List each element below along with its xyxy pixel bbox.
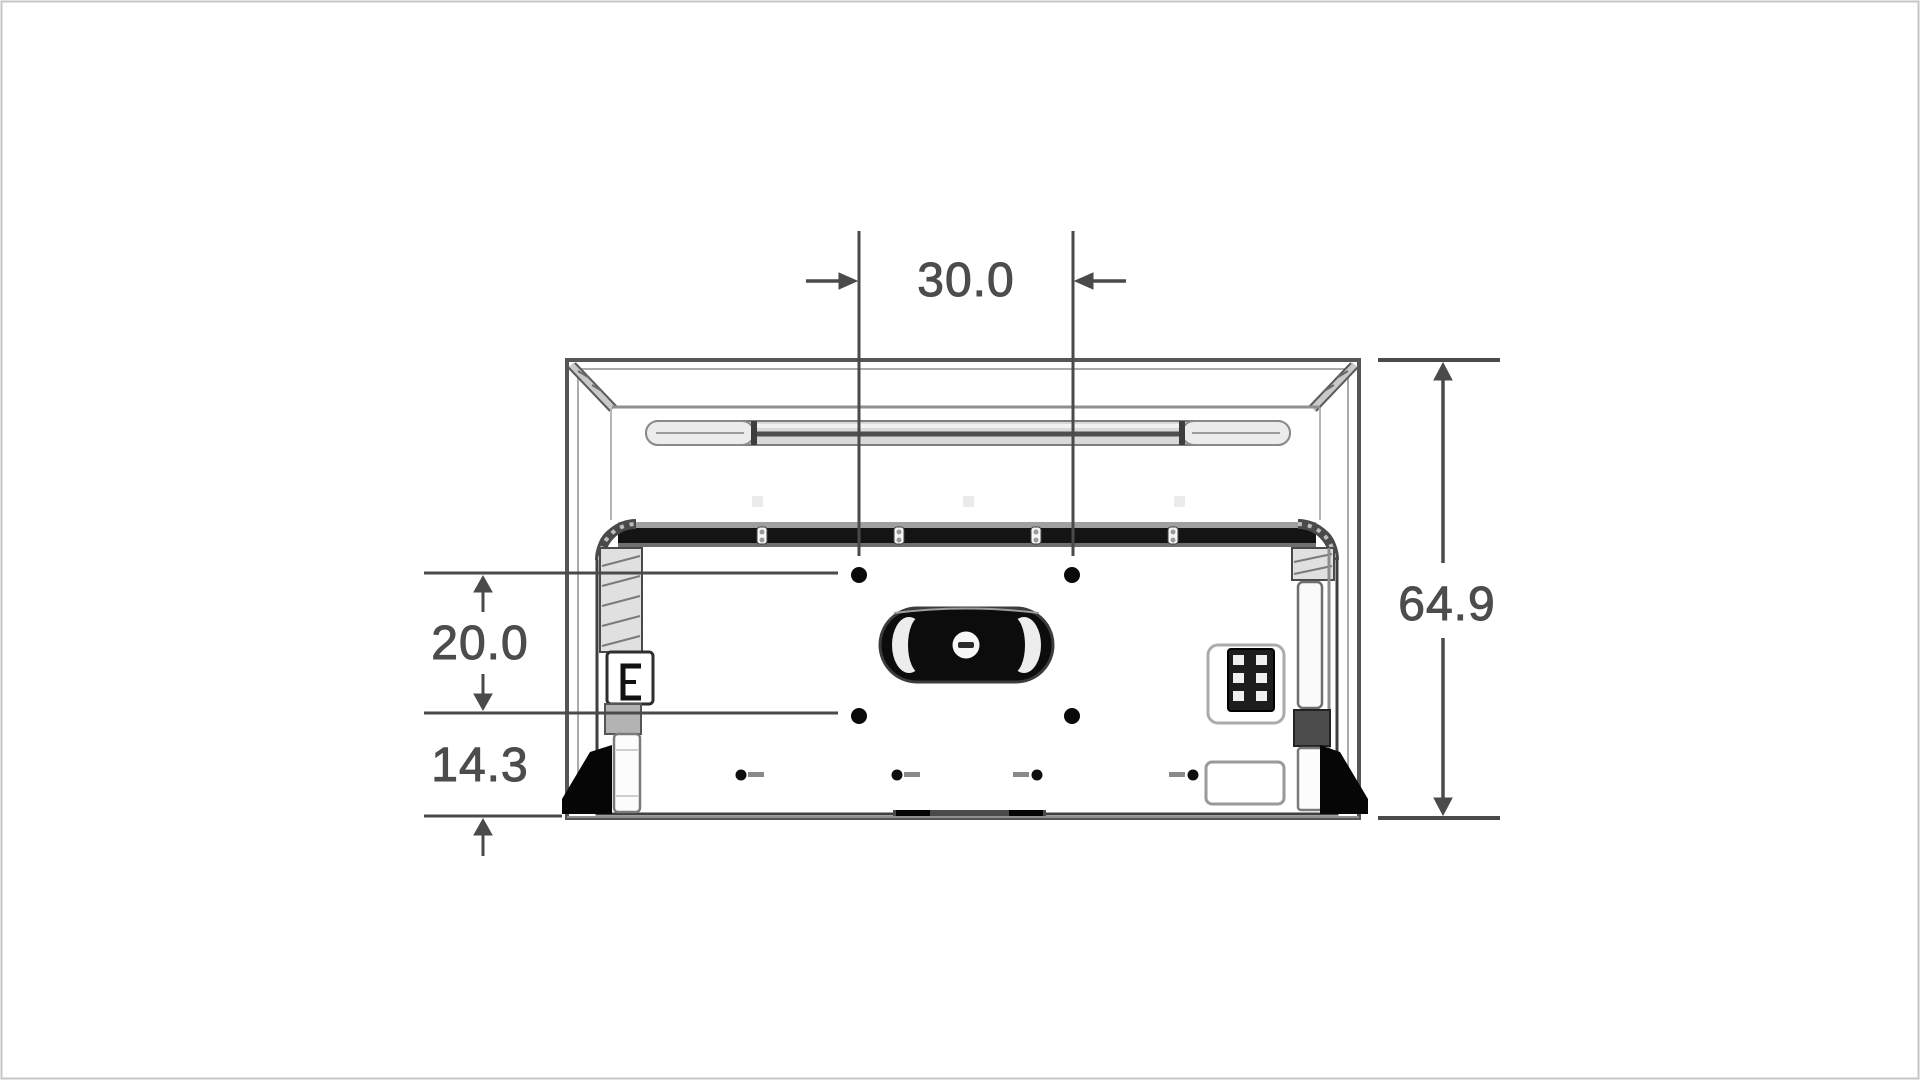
- left-slot-bar: [614, 734, 640, 812]
- right-column-segment: [1294, 710, 1330, 746]
- top-strip: [618, 522, 1316, 547]
- label-sticker: [1206, 762, 1284, 804]
- mount-height-label: 20.0: [431, 617, 528, 670]
- tv-rear-dimension-diagram: 30.0 20.0 14.3 64.9: [0, 0, 1920, 1080]
- mount-width-label: 30.0: [917, 254, 1014, 307]
- bottom-offset-label: 14.3: [431, 739, 528, 792]
- vesa-hole-top-right: [1064, 567, 1080, 583]
- connector-panel: [1208, 645, 1284, 723]
- handle-bar: [646, 421, 1290, 445]
- vesa-hole-top-left: [851, 567, 867, 583]
- tv-rear-view: [562, 360, 1368, 818]
- vesa-mount-boss: [880, 608, 1053, 682]
- vesa-hole-bottom-right: [1064, 708, 1080, 724]
- vesa-hole-bottom-left: [851, 708, 867, 724]
- left-column-segment: [605, 704, 641, 734]
- overall-height-label: 64.9: [1398, 578, 1495, 631]
- left-bracket-box: [607, 652, 653, 704]
- right-slot-bar: [1298, 582, 1322, 708]
